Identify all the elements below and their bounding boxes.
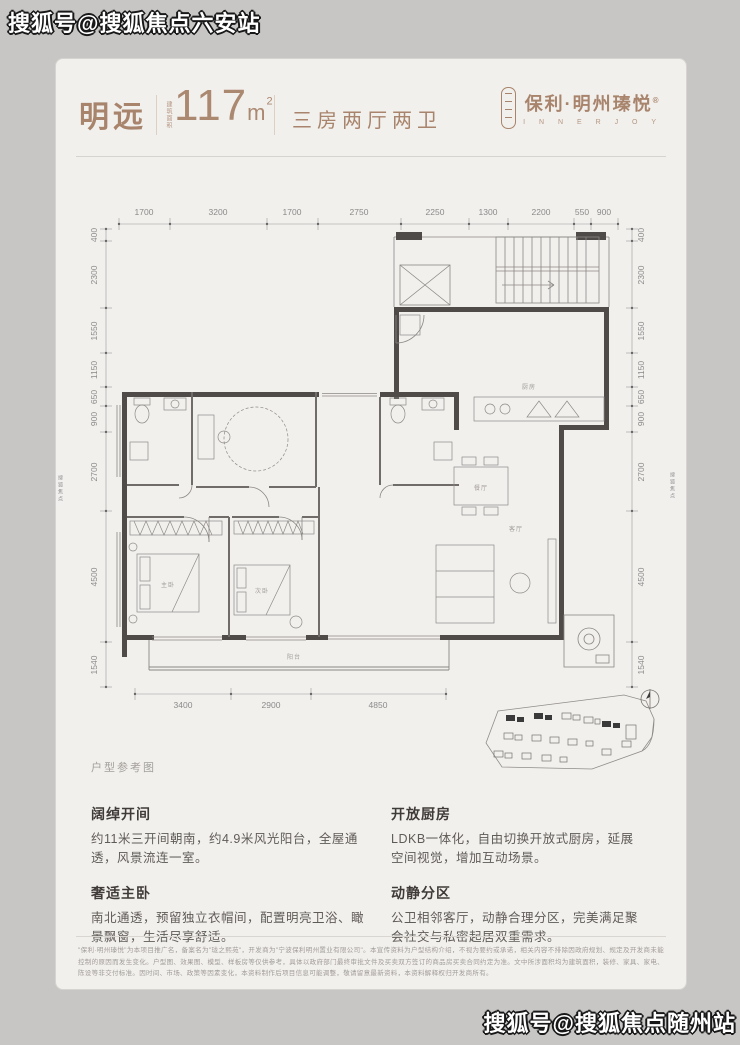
svg-text:2300: 2300 xyxy=(636,265,646,284)
svg-text:1700: 1700 xyxy=(135,207,154,217)
dimensions-top: 1700 3200 1700 2750 2250 1300 2200 550 9… xyxy=(118,207,619,230)
highlighted-buildings xyxy=(506,713,620,728)
room-labels: 主卧 次卧 客厅 餐厅 厨房 阳台 xyxy=(161,383,536,661)
utility-room xyxy=(564,615,614,667)
feature-body: 公卫相邻客厅，动静合理分区，完美满足聚会社交与私密起居双重需求。 xyxy=(391,909,641,948)
svg-text:1300: 1300 xyxy=(479,207,498,217)
svg-text:2300: 2300 xyxy=(89,265,99,284)
svg-text:900: 900 xyxy=(636,412,646,426)
svg-text:1150: 1150 xyxy=(636,361,646,380)
svg-text:1550: 1550 xyxy=(89,321,99,340)
feature-title: 动静分区 xyxy=(391,883,641,903)
feature-zoning: 动静分区 公卫相邻客厅，动静合理分区，完美满足聚会社交与私密起居双重需求。 xyxy=(391,883,663,948)
svg-text:400: 400 xyxy=(636,228,646,242)
feature-title: 阔绰开间 xyxy=(91,804,369,824)
site-buildings xyxy=(494,713,636,762)
feature-body: 南北通透，预留独立衣帽间，配置明亮卫浴、瞰景飘窗，生活尽享舒适。 xyxy=(91,909,369,948)
area-value: 117m2 xyxy=(174,81,274,131)
svg-text:1150: 1150 xyxy=(89,361,99,380)
svg-text:1550: 1550 xyxy=(636,321,646,340)
feature-title: 奢适主卧 xyxy=(91,883,369,903)
master-wardrobe xyxy=(130,521,222,535)
walls xyxy=(122,307,609,657)
brand-logo: 保利·明州瑧悦® I N N E R J O Y xyxy=(501,87,662,129)
north-arrow-icon xyxy=(641,689,659,709)
header-rule xyxy=(76,156,666,157)
floor-plan: 1700 3200 1700 2750 2250 1300 2200 550 9… xyxy=(84,187,659,722)
svg-text:4850: 4850 xyxy=(369,700,388,710)
svg-text:400: 400 xyxy=(89,228,99,242)
svg-text:2900: 2900 xyxy=(262,700,281,710)
svg-text:1540: 1540 xyxy=(89,655,99,674)
svg-text:厨房: 厨房 xyxy=(522,383,536,391)
svg-text:3400: 3400 xyxy=(174,700,193,710)
feature-body: 约11米三开间朝南，约4.9米风光阳台，全屋通透，风景流连一室。 xyxy=(91,830,369,869)
svg-text:阳台: 阳台 xyxy=(287,653,301,661)
partitions xyxy=(127,392,459,637)
plan-caption: 户型参考图 xyxy=(91,759,156,775)
brand-seal-icon xyxy=(501,87,516,129)
feature-list: 阔绰开间 约11米三开间朝南，约4.9米风光阳台，全屋通透，风景流连一室。 开放… xyxy=(91,804,663,948)
svg-text:1700: 1700 xyxy=(283,207,302,217)
svg-text:2700: 2700 xyxy=(89,462,99,481)
svg-text:2700: 2700 xyxy=(636,462,646,481)
kitchen-counter xyxy=(400,315,604,421)
brand-name: 保利·明州瑧悦® xyxy=(523,90,662,116)
svg-text:650: 650 xyxy=(636,390,646,404)
svg-text:2200: 2200 xyxy=(532,207,551,217)
svg-text:900: 900 xyxy=(89,412,99,426)
furniture xyxy=(129,315,604,628)
area-prefix-label: 建筑面积 xyxy=(164,101,173,135)
svg-text:3200: 3200 xyxy=(209,207,228,217)
area-number: 117 xyxy=(174,81,247,130)
svg-text:4500: 4500 xyxy=(89,567,99,586)
registered-mark: ® xyxy=(653,96,661,105)
layout-label: 三房两厅两卫 xyxy=(292,104,442,133)
svg-text:1540: 1540 xyxy=(636,655,646,674)
dimensions-bottom: 3400 2900 4850 xyxy=(134,688,447,710)
brochure-card: 明远 建筑面积 117m2 三房两厅两卫 保利·明州瑧悦® I N N E R … xyxy=(55,58,687,990)
svg-text:900: 900 xyxy=(597,207,611,217)
sofa xyxy=(436,539,556,623)
bedroom2-bed xyxy=(234,565,302,628)
service-core xyxy=(394,232,609,308)
footer-rule xyxy=(76,936,666,937)
unit-name: 明远 xyxy=(79,92,147,136)
watermark-bottom: 搜狐号@搜狐焦点随州站 xyxy=(484,1006,736,1038)
dimensions-left: 400 2300 1550 1150 650 900 2700 4500 154… xyxy=(89,228,112,689)
svg-text:550: 550 xyxy=(575,207,589,217)
svg-text:客厅: 客厅 xyxy=(509,525,523,533)
header-divider-2 xyxy=(274,95,275,135)
study-room xyxy=(198,407,288,471)
staircase xyxy=(496,237,599,303)
site-plan xyxy=(474,685,679,795)
doors xyxy=(179,315,424,542)
feature-title: 开放厨房 xyxy=(391,804,641,824)
washer-icon xyxy=(578,628,600,650)
svg-text:650: 650 xyxy=(89,390,99,404)
svg-text:2250: 2250 xyxy=(426,207,445,217)
svg-text:主卧: 主卧 xyxy=(161,581,175,589)
feature-master-suite: 奢适主卧 南北通透，预留独立衣帽间，配置明亮卫浴、瞰景飘窗，生活尽享舒适。 xyxy=(91,883,391,948)
area-unit-sup: 2 xyxy=(266,95,273,107)
right-edge-watermark: 搜狐焦点 xyxy=(669,470,676,502)
brand-name-en: I N N E R J O Y xyxy=(523,119,662,126)
header-divider xyxy=(156,95,157,135)
area-unit: m xyxy=(247,100,266,125)
svg-text:次卧: 次卧 xyxy=(255,587,269,595)
feature-body: LDKB一体化，自由切换开放式厨房，延展空间视觉，增加互动场景。 xyxy=(391,830,641,869)
disclaimer: "保利·明州瑧悦"为本项目推广名，备案名为"珑之熙苑"，开发商为"宁波保利明州置… xyxy=(78,945,664,980)
bathroom-2 xyxy=(390,398,452,460)
feature-open-bays: 阔绰开间 约11米三开间朝南，约4.9米风光阳台，全屋通透，风景流连一室。 xyxy=(91,804,391,869)
svg-text:餐厅: 餐厅 xyxy=(474,484,488,492)
dimensions-right: 400 2300 1550 1150 650 900 2700 4500 154… xyxy=(626,228,646,689)
watermark-top: 搜狐号@搜狐焦点六安站 xyxy=(8,6,260,38)
feature-open-kitchen: 开放厨房 LDKB一体化，自由切换开放式厨房，延展空间视觉，增加互动场景。 xyxy=(391,804,663,869)
svg-text:4500: 4500 xyxy=(636,567,646,586)
svg-text:2750: 2750 xyxy=(350,207,369,217)
bathroom-1 xyxy=(130,398,186,460)
left-edge-watermark: 搜狐焦点 xyxy=(57,473,64,505)
